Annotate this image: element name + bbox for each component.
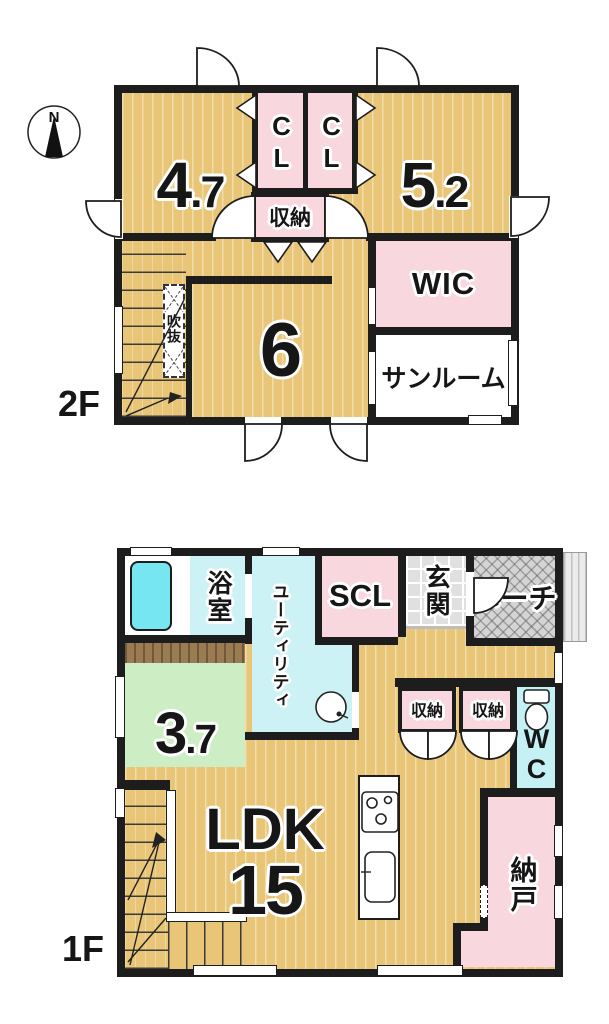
bifold-closet-right-2 — [356, 162, 375, 188]
stairs-arrow-1f — [128, 832, 166, 965]
vector-overlay: N — [0, 0, 609, 1024]
door-arc-room47 — [212, 196, 255, 238]
floor-plan-canvas: 4.7 5.2 CL CL 収納 WIC サンルーム 吹抜 6 2F — [0, 0, 609, 1024]
door-arc-2f-right — [511, 197, 549, 236]
bifold-closet-right-1 — [356, 95, 375, 121]
door-arc-storage1-right — [428, 731, 456, 759]
compass-icon: N — [28, 106, 80, 158]
door-arc-2f-top-right — [377, 48, 419, 86]
bifold-storage2f-1 — [264, 242, 292, 262]
bifold-closet-left-2 — [237, 162, 256, 188]
stove-icon — [362, 792, 398, 832]
door-arc-room52 — [325, 196, 368, 238]
door-arc-room6-left — [245, 424, 282, 461]
sink-icon — [316, 692, 348, 722]
door-arc-storage2-left — [461, 731, 489, 759]
door-arc-entrance — [474, 578, 508, 613]
stairs-arrow-2f — [126, 300, 184, 416]
kitchen-sink-icon — [361, 852, 395, 902]
door-arc-room6-right — [330, 424, 367, 461]
door-arc-storage2-right — [489, 731, 517, 759]
door-arc-storage1-left — [400, 731, 428, 759]
bifold-closet-left-1 — [237, 95, 256, 121]
door-arc-2f-left — [86, 201, 121, 237]
bifold-storage2f-2 — [298, 242, 326, 262]
door-arc-2f-top-left — [197, 48, 239, 86]
toilet-icon — [524, 690, 549, 730]
